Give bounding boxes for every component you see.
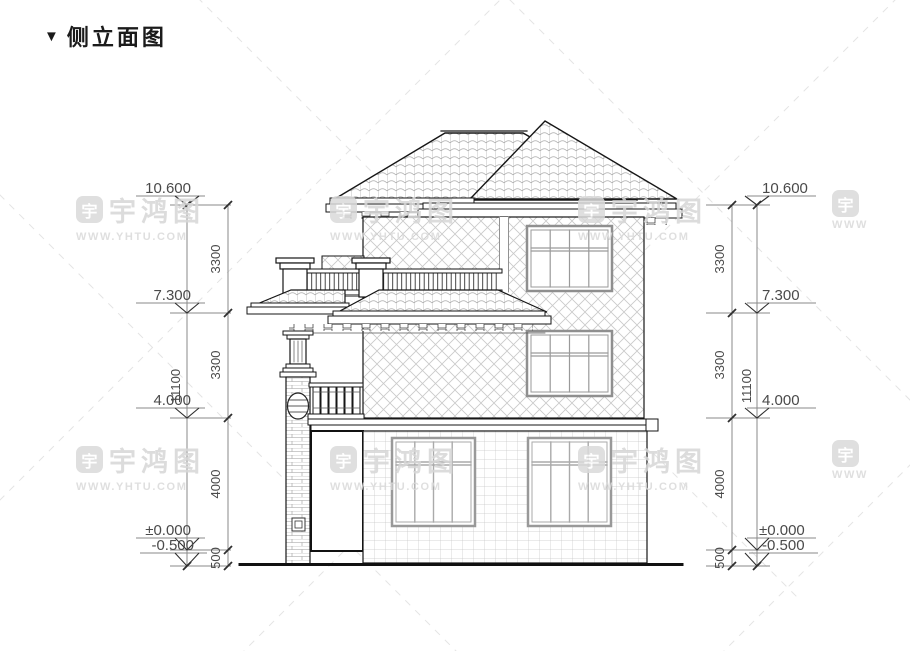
elevation-drawing: 10.600 7.300 4.000 ±0.000 -0.500 3300 33… (0, 0, 910, 651)
segment-dim: 4000 (712, 470, 727, 499)
elevation-label-third: 7.300 (762, 287, 800, 304)
segment-dim: 3300 (712, 351, 727, 380)
page-title-text: 侧立面图 (67, 20, 167, 52)
side-elevation-sheet: 10.600 7.300 4.000 ±0.000 -0.500 3300 33… (0, 0, 910, 651)
house-elevation (240, 121, 682, 565)
ground-floor-window-left (392, 438, 475, 526)
entrance-opening (311, 431, 363, 551)
total-dim: 11100 (168, 369, 183, 403)
segment-dim: 3300 (712, 245, 727, 274)
second-floor-window (527, 331, 612, 396)
right-dimension-column: 10.600 7.300 4.000 ±0.000 -0.500 3300 33… (706, 180, 818, 570)
porch-canopy (247, 290, 551, 333)
page-title: ▼ 侧立面图 (44, 20, 167, 52)
porch-balusters (313, 387, 360, 414)
floor-slab-band (308, 419, 658, 431)
porch-pier (286, 377, 310, 564)
segment-dim: 500 (208, 547, 223, 569)
segment-dim: 500 (712, 547, 727, 569)
elevation-label-grade: -0.500 (762, 537, 805, 554)
porch-column (280, 331, 316, 377)
elevation-label-third: 7.300 (153, 287, 191, 304)
elevation-label-roof: 10.600 (145, 180, 191, 197)
elevation-label-roof: 10.600 (762, 180, 808, 197)
total-dim: 11100 (739, 369, 754, 403)
ground-floor-window-right (528, 438, 611, 526)
third-floor-window (527, 226, 612, 291)
elevation-label-second: 4.000 (762, 392, 800, 409)
segment-dim: 4000 (208, 470, 223, 499)
porch-railing (308, 383, 364, 419)
elevation-label-grade: -0.500 (151, 537, 194, 554)
segment-dim: 3300 (208, 245, 223, 274)
title-marker-icon: ▼ (44, 28, 59, 45)
left-dimension-column: 10.600 7.300 4.000 ±0.000 -0.500 3300 33… (136, 180, 232, 570)
pier-outlet (292, 518, 305, 531)
segment-dim: 3300 (208, 351, 223, 380)
